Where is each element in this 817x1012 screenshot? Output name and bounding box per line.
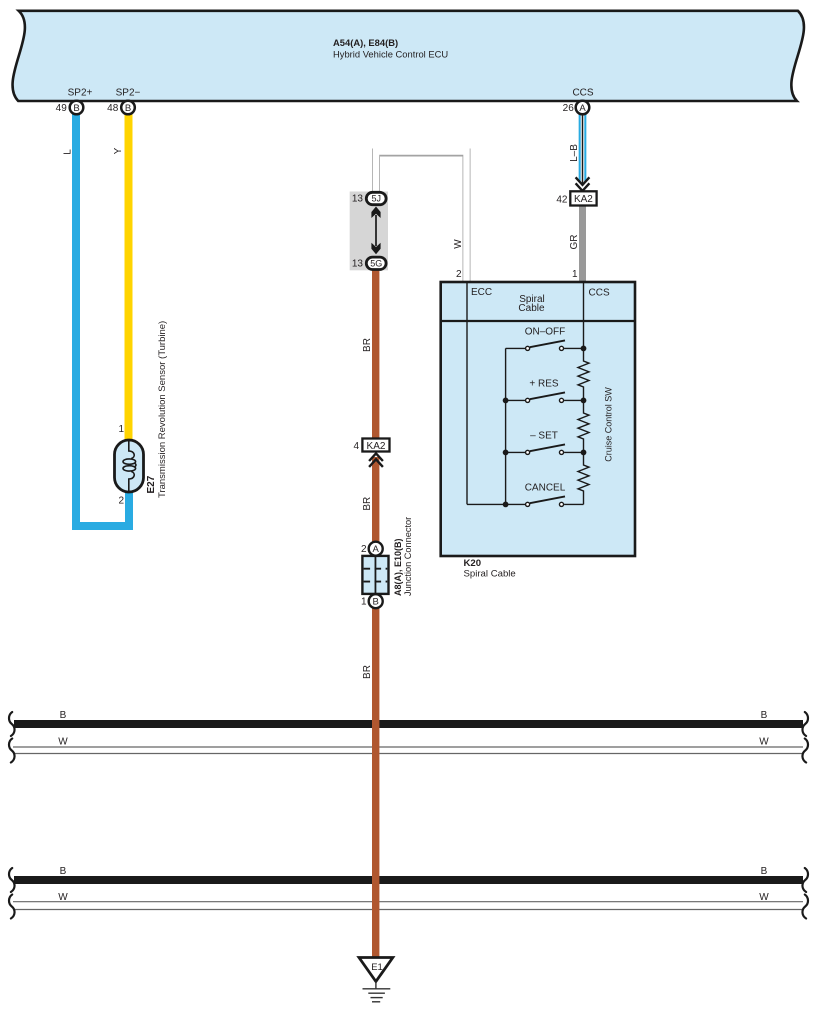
svg-text:5J: 5J bbox=[371, 194, 381, 204]
svg-text:Y: Y bbox=[113, 147, 124, 154]
svg-text:A8(A), E10(B): A8(A), E10(B) bbox=[393, 538, 403, 596]
svg-text:48: 48 bbox=[107, 103, 119, 114]
svg-text:1: 1 bbox=[572, 269, 578, 280]
svg-text:Hybrid Vehicle Control ECU: Hybrid Vehicle Control ECU bbox=[333, 49, 448, 60]
svg-text:B: B bbox=[73, 103, 79, 114]
svg-text:2: 2 bbox=[118, 496, 124, 507]
svg-text:CCS: CCS bbox=[572, 88, 593, 99]
svg-text:1: 1 bbox=[361, 597, 367, 608]
svg-text:13: 13 bbox=[352, 259, 364, 270]
svg-text:KA2: KA2 bbox=[574, 194, 593, 205]
svg-text:+ RES: + RES bbox=[529, 379, 559, 390]
svg-text:Transmission Revolution Sensor: Transmission Revolution Sensor (Turbine) bbox=[157, 321, 168, 498]
svg-text:– SET: – SET bbox=[530, 431, 558, 442]
svg-text:5G: 5G bbox=[370, 259, 382, 269]
svg-text:A54(A), E84(B): A54(A), E84(B) bbox=[333, 37, 398, 48]
svg-text:B: B bbox=[761, 710, 768, 721]
svg-text:4: 4 bbox=[353, 441, 359, 452]
svg-text:W: W bbox=[58, 737, 68, 748]
svg-text:13: 13 bbox=[352, 194, 364, 205]
svg-text:SP2+: SP2+ bbox=[68, 88, 93, 99]
svg-text:1: 1 bbox=[118, 424, 124, 435]
svg-text:ON–OFF: ON–OFF bbox=[525, 327, 566, 338]
svg-text:A: A bbox=[579, 103, 586, 114]
svg-text:W: W bbox=[759, 737, 769, 748]
svg-text:B: B bbox=[373, 597, 379, 608]
svg-text:Cruise Control SW: Cruise Control SW bbox=[604, 387, 614, 462]
svg-text:K20: K20 bbox=[464, 558, 482, 569]
svg-text:W: W bbox=[453, 239, 464, 249]
svg-text:ECC: ECC bbox=[471, 287, 492, 298]
svg-text:L–B: L–B bbox=[569, 144, 580, 162]
svg-text:B: B bbox=[60, 866, 67, 877]
svg-text:GR: GR bbox=[569, 235, 580, 250]
svg-text:B: B bbox=[60, 710, 67, 721]
svg-text:49: 49 bbox=[56, 103, 68, 114]
svg-text:SP2−: SP2− bbox=[116, 88, 141, 99]
svg-text:Junction Connector: Junction Connector bbox=[403, 517, 413, 596]
svg-text:B: B bbox=[125, 103, 131, 114]
svg-text:W: W bbox=[759, 892, 769, 903]
svg-text:L: L bbox=[63, 149, 74, 155]
svg-text:Spiral Cable: Spiral Cable bbox=[464, 569, 516, 580]
svg-text:2: 2 bbox=[361, 544, 367, 555]
svg-text:42: 42 bbox=[556, 195, 568, 206]
svg-text:BR: BR bbox=[362, 338, 373, 352]
svg-text:CANCEL: CANCEL bbox=[525, 483, 566, 494]
svg-text:Cable: Cable bbox=[518, 303, 545, 314]
svg-text:26: 26 bbox=[563, 103, 575, 114]
svg-text:E27: E27 bbox=[146, 475, 157, 493]
svg-text:E1: E1 bbox=[371, 962, 383, 973]
svg-text:B: B bbox=[761, 866, 768, 877]
svg-text:BR: BR bbox=[362, 665, 373, 679]
svg-text:CCS: CCS bbox=[589, 288, 610, 299]
svg-text:BR: BR bbox=[362, 497, 373, 511]
svg-text:W: W bbox=[58, 892, 68, 903]
svg-text:2: 2 bbox=[456, 269, 462, 280]
svg-text:A: A bbox=[373, 544, 380, 555]
svg-text:KA2: KA2 bbox=[367, 441, 386, 452]
